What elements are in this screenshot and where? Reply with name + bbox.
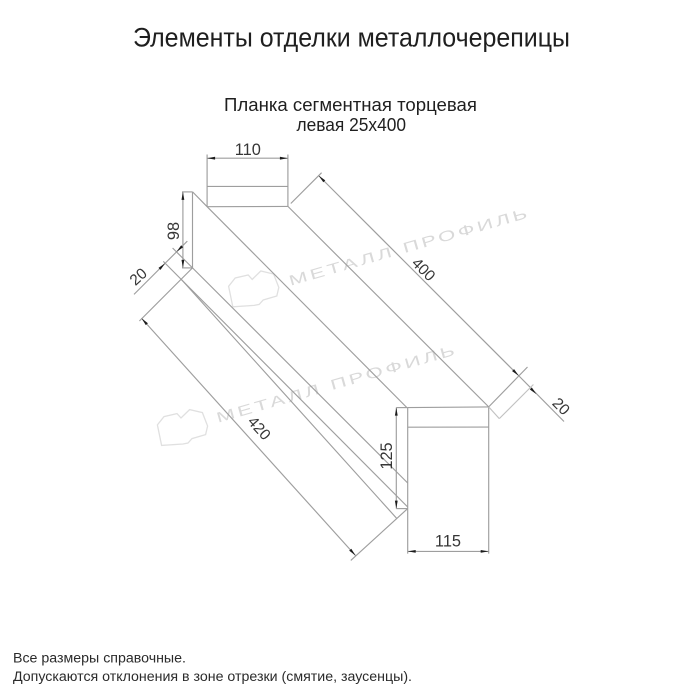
svg-text:400: 400 — [408, 255, 438, 285]
svg-text:МЕТАЛЛ ПРОФИЛЬ: МЕТАЛЛ ПРОФИЛЬ — [214, 341, 459, 425]
svg-text:левая 25х400: левая 25х400 — [297, 114, 407, 135]
svg-text:125: 125 — [378, 442, 396, 469]
svg-text:Все размеры справочные.: Все размеры справочные. — [13, 651, 186, 667]
svg-text:420: 420 — [244, 413, 274, 443]
svg-text:20: 20 — [127, 265, 151, 289]
svg-text:20: 20 — [549, 395, 573, 419]
svg-text:Допускаются отклонения в зоне: Допускаются отклонения в зоне отрезки (с… — [13, 669, 412, 685]
svg-text:МЕТАЛЛ ПРОФИЛЬ: МЕТАЛЛ ПРОФИЛЬ — [287, 204, 532, 288]
svg-text:98: 98 — [165, 222, 183, 240]
svg-text:Планка сегментная торцевая: Планка сегментная торцевая — [224, 94, 477, 115]
svg-text:110: 110 — [235, 141, 261, 159]
svg-text:115: 115 — [435, 532, 461, 550]
svg-text:Элементы отделки металлочерепи: Элементы отделки металлочерепицы — [133, 23, 570, 53]
